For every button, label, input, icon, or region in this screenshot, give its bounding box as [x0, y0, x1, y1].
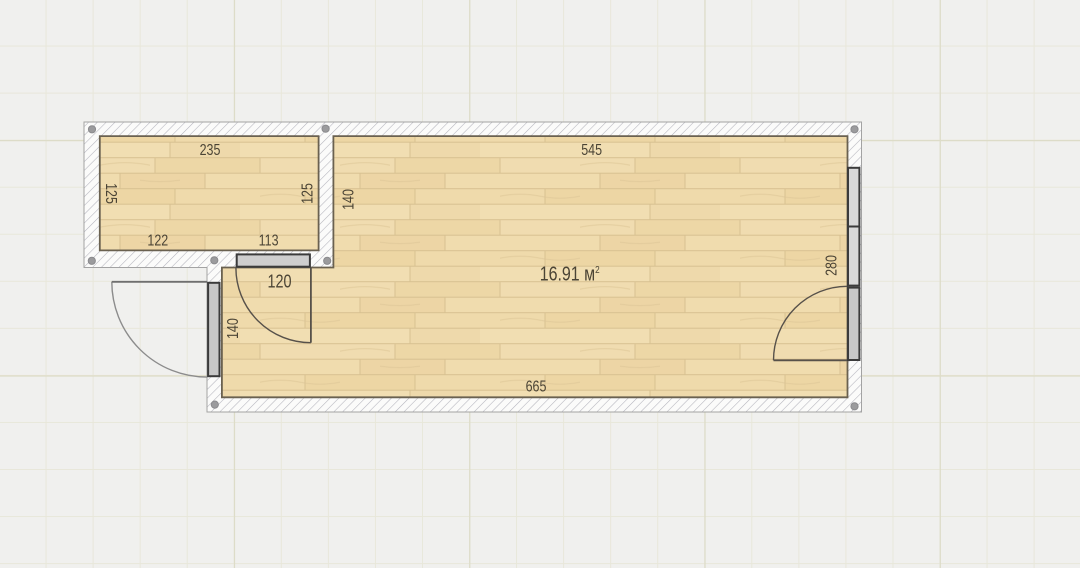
svg-text:280: 280	[823, 255, 841, 276]
svg-text:113: 113	[259, 232, 279, 250]
svg-text:140: 140	[225, 318, 243, 339]
svg-text:545: 545	[581, 141, 602, 159]
svg-text:665: 665	[526, 378, 547, 396]
svg-text:120: 120	[267, 271, 291, 292]
svg-text:140: 140	[340, 189, 358, 210]
svg-text:125: 125	[299, 183, 317, 204]
svg-text:235: 235	[200, 142, 221, 160]
svg-text:16.91 м2: 16.91 м2	[540, 261, 600, 284]
svg-text:125: 125	[102, 183, 120, 204]
svg-text:122: 122	[147, 232, 168, 250]
